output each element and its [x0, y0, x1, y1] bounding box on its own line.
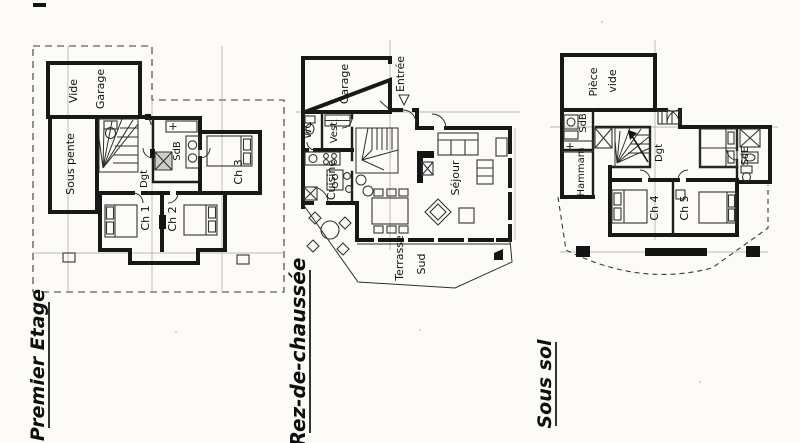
bunk-beds	[700, 129, 737, 167]
shower-icon	[595, 128, 612, 148]
room-label-garage: Garage	[338, 64, 351, 105]
staircase	[615, 128, 650, 167]
walls	[303, 58, 515, 244]
room-label-sud: Sud	[415, 254, 428, 275]
room-label-ch4: Ch 4	[648, 195, 661, 220]
fireplace	[422, 162, 433, 175]
room-labels: Garage Entrée WC Vest. Cuisine Séjour Te…	[303, 56, 462, 282]
plan-title-sous-sol: Sous sol	[534, 339, 556, 429]
plan-title-rez-de-chaussee: Rez-de-chaussée	[286, 258, 310, 443]
room-label-cuisine: Cuisine	[325, 160, 338, 200]
plan-title-premier-etage: Premier Etage	[27, 289, 49, 441]
sink-icon	[567, 118, 575, 126]
scanned-floor-plan-sheet: Vide Garage Sous pente SdB Dgt Ch 1 Ch 2…	[0, 0, 800, 443]
sink-icon	[309, 155, 317, 163]
terrace-chair	[307, 240, 319, 252]
plan-sous-sol: Pièce vide SdB Hammam Dgt Ch 4 Ch 5 SdE …	[534, 40, 778, 429]
bed	[184, 205, 217, 235]
window-marker	[63, 253, 75, 262]
room-label-sous-pente: Sous pente	[64, 133, 77, 195]
closet	[658, 111, 680, 124]
room-label-dgt: Dgt	[139, 170, 150, 188]
staircase	[99, 119, 138, 172]
room-label-ch5: Ch 5	[678, 195, 691, 220]
room-label-hammam: Hammam	[576, 148, 587, 197]
room-label-ch1: Ch 1	[139, 205, 152, 230]
toilet-icon	[741, 166, 752, 182]
room-label-garage: Garage	[94, 69, 107, 110]
armchair	[425, 199, 451, 225]
window-marker	[746, 246, 760, 257]
room-label-sde: SdE	[740, 146, 751, 165]
bed	[105, 205, 137, 237]
terrace-chair	[309, 212, 321, 224]
scan-mark	[33, 3, 46, 7]
room-label-sdb: SdB	[172, 141, 183, 161]
terrace-chair	[337, 243, 349, 255]
room-label-dgt: Dgt	[654, 144, 665, 162]
column	[356, 175, 366, 185]
terrace-chair	[339, 217, 351, 229]
room-label-terrasse: Terrasse	[393, 235, 406, 282]
scan-specks	[175, 21, 701, 383]
column	[304, 187, 317, 200]
armchair	[477, 160, 493, 184]
sofa	[438, 133, 478, 155]
side-table	[459, 208, 474, 223]
sink-icon	[188, 154, 196, 162]
room-label-vide: Vide	[67, 79, 80, 103]
staircase	[356, 128, 398, 196]
room-label-entree: Entrée	[394, 56, 407, 92]
window-marker	[237, 255, 249, 264]
entree-arrow-icon	[399, 95, 409, 105]
room-label-vest: Vest.	[329, 119, 340, 144]
room-label-sejour: Séjour	[449, 160, 462, 196]
room-label-piece: Pièce	[587, 67, 600, 96]
bed	[612, 190, 647, 223]
room-label-wc: WC	[303, 122, 314, 139]
room-labels: Pièce vide SdB Hammam Dgt Ch 4 Ch 5 SdE	[576, 67, 751, 220]
survey-marker	[494, 249, 503, 260]
window-marker	[645, 248, 707, 256]
side-table	[496, 138, 507, 156]
column	[363, 186, 373, 196]
stool	[344, 173, 351, 180]
shower-icon	[740, 129, 760, 147]
terrace-table	[321, 221, 339, 239]
plan-premier-etage: Vide Garage Sous pente SdB Dgt Ch 1 Ch 2…	[27, 3, 284, 441]
window-marker	[576, 246, 590, 257]
room-label-ch3: Ch 3	[232, 159, 245, 184]
bed	[207, 136, 252, 166]
room-label-piece-vide: vide	[606, 69, 619, 93]
plan-rez-de-chaussee: Garage Entrée WC Vest. Cuisine Séjour Te…	[286, 40, 520, 443]
room-label-sdb: SdB	[578, 113, 589, 133]
room-label-ch2: Ch 2	[166, 206, 179, 231]
sink-icon	[188, 141, 196, 149]
